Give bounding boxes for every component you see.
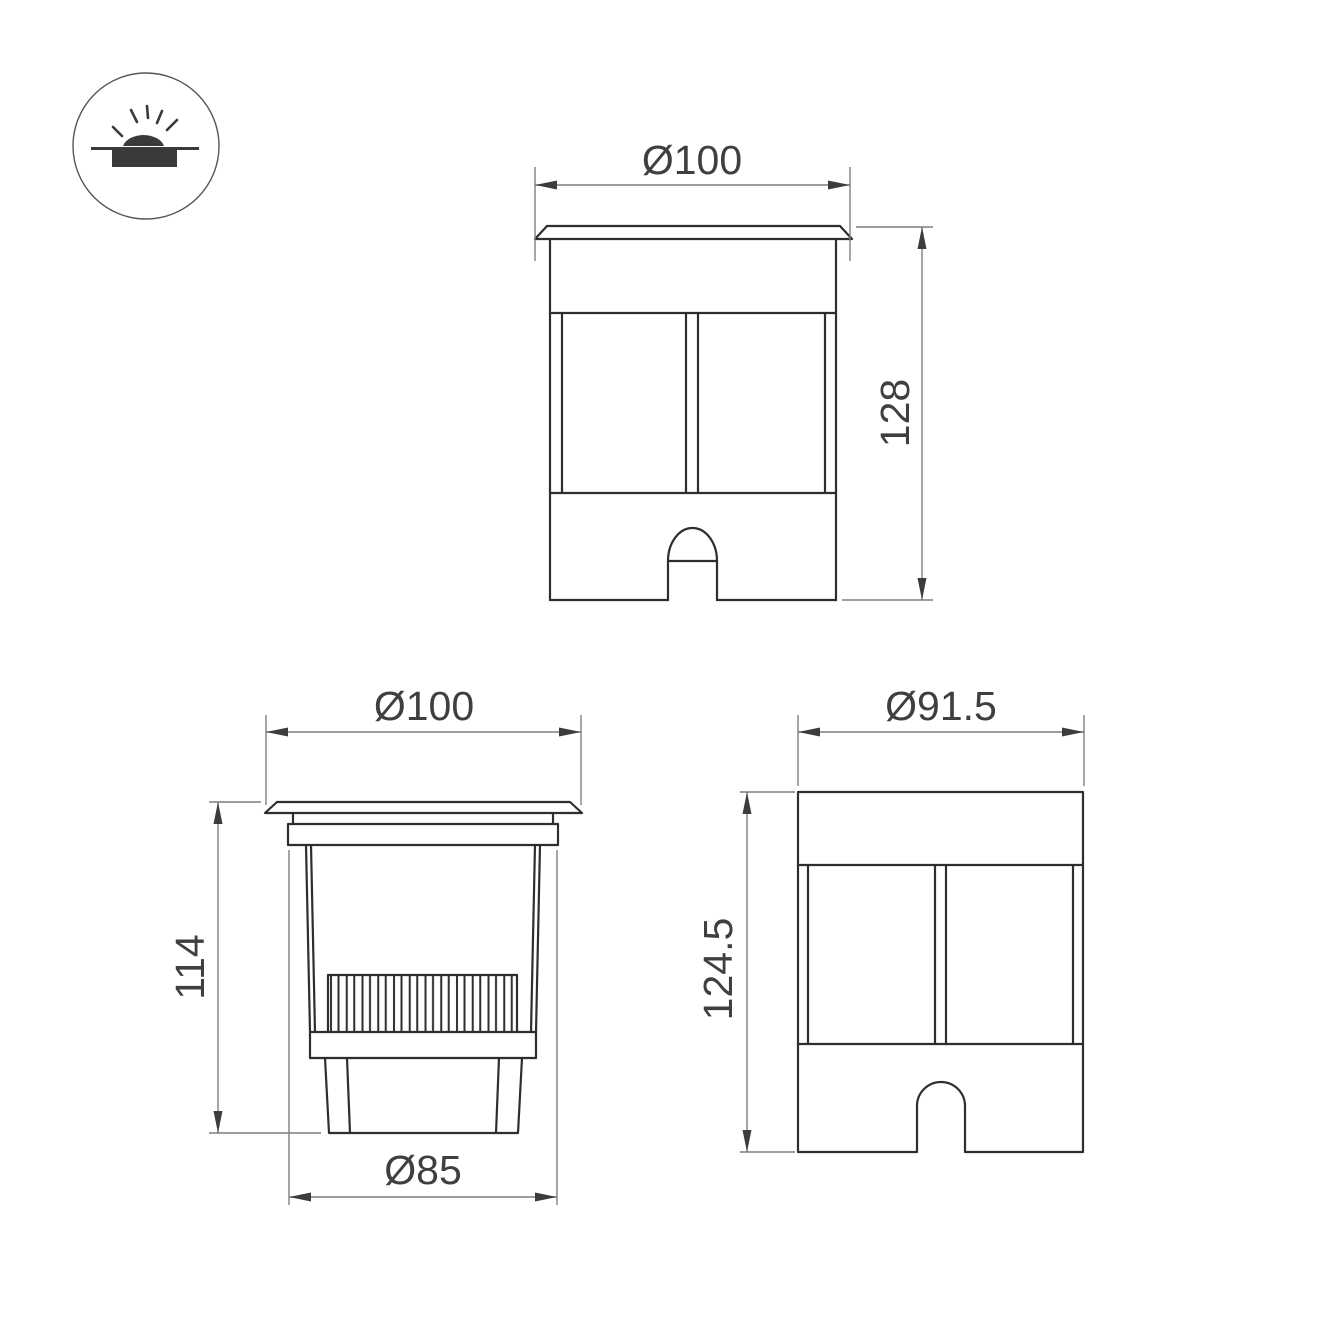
side-height-label: 124.5 [695, 918, 741, 1021]
side-view-dimensions: Ø91.5 124.5 [695, 683, 1084, 1152]
section-collar-ring [288, 824, 558, 845]
section-height-label: 114 [167, 934, 213, 999]
front-diameter-label: Ø100 [642, 137, 742, 183]
side-body-outline [798, 792, 1083, 1152]
recessed-ground-light-icon [73, 73, 219, 219]
front-height-label: 128 [872, 379, 918, 447]
section-top-diameter-label: Ø100 [374, 683, 474, 729]
icon-lamp-body [112, 149, 177, 167]
arrow-down [918, 578, 927, 600]
front-cable-entry-arch [668, 528, 717, 600]
technical-drawing-page: Ø100 128 [0, 0, 1331, 1331]
side-glass-section-lines [798, 865, 1083, 1044]
front-diameter-dimension: Ø100 [535, 137, 850, 261]
arrow-left [798, 728, 820, 737]
front-flange [535, 226, 852, 239]
arrow-up [214, 802, 223, 824]
front-height-dimension: 128 [842, 227, 933, 600]
section-height-dimension: 114 [167, 802, 321, 1133]
arrow-up [918, 227, 927, 249]
arrow-right [1062, 728, 1084, 737]
side-diameter-dimension: Ø91.5 [798, 683, 1084, 786]
section-body-diameter-label: Ø85 [384, 1147, 462, 1193]
arrow-right [559, 728, 581, 737]
section-top-diameter-dimension: Ø100 [266, 683, 581, 805]
front-glass-section-lines [550, 313, 836, 493]
arrow-right [828, 181, 850, 190]
side-view [798, 792, 1083, 1152]
side-diameter-label: Ø91.5 [885, 683, 997, 729]
arrow-left [535, 181, 557, 190]
side-height-dimension: 124.5 [695, 792, 795, 1152]
front-view [535, 226, 852, 600]
arrow-down [743, 1130, 752, 1152]
arrow-right [535, 1193, 557, 1202]
arrow-down [214, 1111, 223, 1133]
section-neck [293, 813, 553, 824]
section-view [265, 802, 582, 1133]
front-body-outline [550, 239, 836, 600]
technical-drawing-canvas: Ø100 128 [0, 0, 1331, 1331]
section-flange [265, 802, 582, 813]
section-heatsink-fins [328, 975, 517, 1032]
arrow-left [289, 1193, 311, 1202]
front-view-dimensions: Ø100 128 [535, 137, 933, 600]
section-rear-housing [325, 1058, 522, 1133]
arrow-left [266, 728, 288, 737]
arrow-up [743, 792, 752, 814]
section-base-plate [310, 1032, 536, 1058]
